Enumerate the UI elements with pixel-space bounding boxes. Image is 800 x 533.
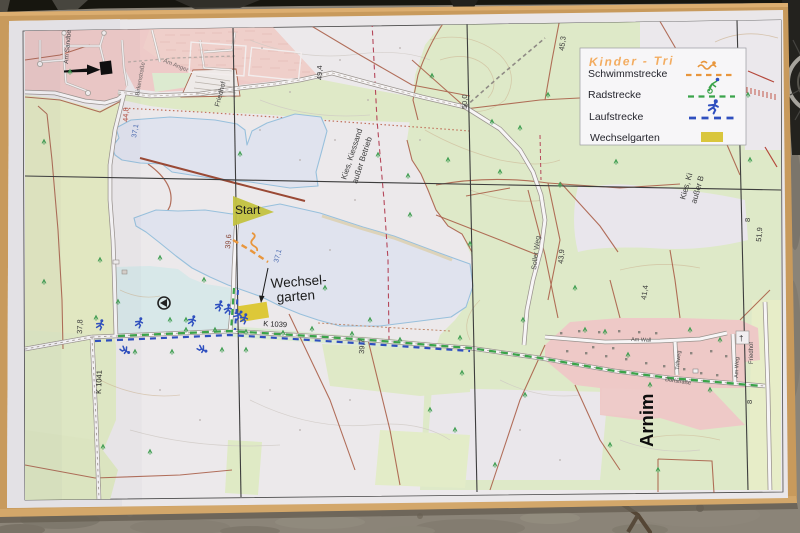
svg-text:49,4: 49,4 [315,65,324,80]
svg-text:Radstrecke: Radstrecke [588,89,641,101]
svg-text:K 1039: K 1039 [263,319,287,329]
svg-text:Schwimmstrecke: Schwimmstrecke [588,68,668,80]
svg-text:8: 8 [745,400,754,404]
svg-text:39,6: 39,6 [223,234,233,249]
svg-text:Kinder - Tri: Kinder - Tri [589,54,675,69]
svg-text:Am Weg: Am Weg [734,357,741,378]
svg-text:Start: Start [235,203,261,217]
svg-text:8: 8 [743,218,752,222]
svg-text:50,0: 50,0 [460,94,469,109]
svg-text:Am Wall: Am Wall [631,337,651,344]
svg-text:Laufstrecke: Laufstrecke [589,111,643,123]
svg-text:Wechselgarten: Wechselgarten [590,132,660,144]
svg-text:45,3: 45,3 [557,36,568,52]
svg-text:garten: garten [276,287,315,305]
svg-text:39,7: 39,7 [357,339,367,354]
svg-text:51,9: 51,9 [754,227,764,242]
svg-text:Arnim: Arnim [636,394,657,447]
svg-text:Friedhof: Friedhof [749,342,755,364]
svg-text:†: † [739,334,743,343]
svg-text:43,9: 43,9 [556,249,566,264]
